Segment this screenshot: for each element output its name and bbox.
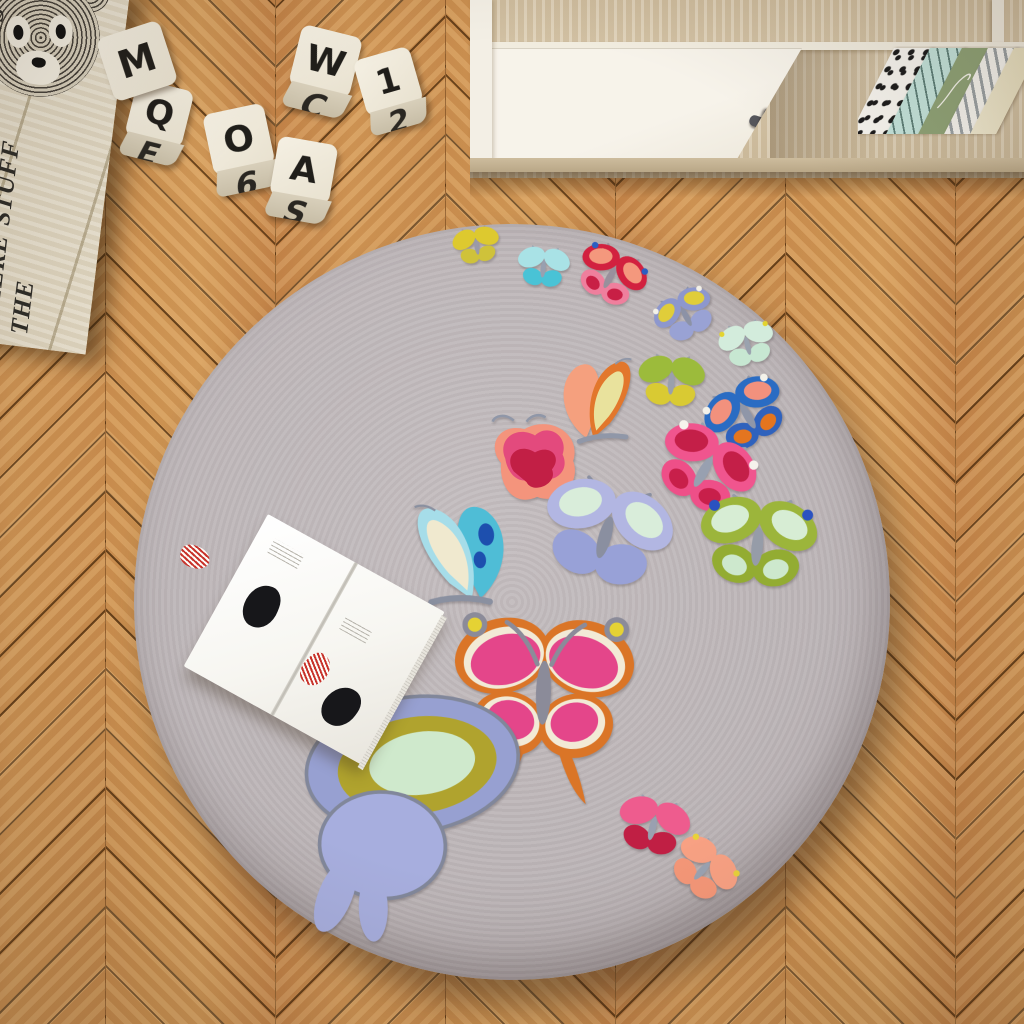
white-cabinet (470, 0, 1024, 178)
cabinet-side-panel (470, 0, 492, 164)
cabinet-floor-shadow (470, 172, 1024, 198)
crate-slogan: THIS IS WHERE THE FUN STUFF HAPPENS (0, 108, 62, 336)
book-red-figure-illustration (294, 648, 336, 691)
room-scene: THIS IS WHERE THE FUN STUFF HAPPENS QEMO… (0, 0, 1024, 1024)
book-black-figure-left (238, 580, 286, 633)
crate-slogan-line: FUN STUFF (0, 135, 58, 231)
book-text-lines (267, 538, 304, 568)
cabinet-bookshelf (858, 46, 1024, 138)
cabinet-bottom-edge (470, 158, 1024, 172)
book-text-lines (339, 617, 372, 644)
crate-slogan-line: HAPPENS (0, 5, 74, 138)
cabinet-top-divider (992, 0, 1004, 46)
crate-slogan-line: THIS IS WHERE THE (0, 229, 47, 336)
book-black-figure-right (315, 679, 367, 733)
